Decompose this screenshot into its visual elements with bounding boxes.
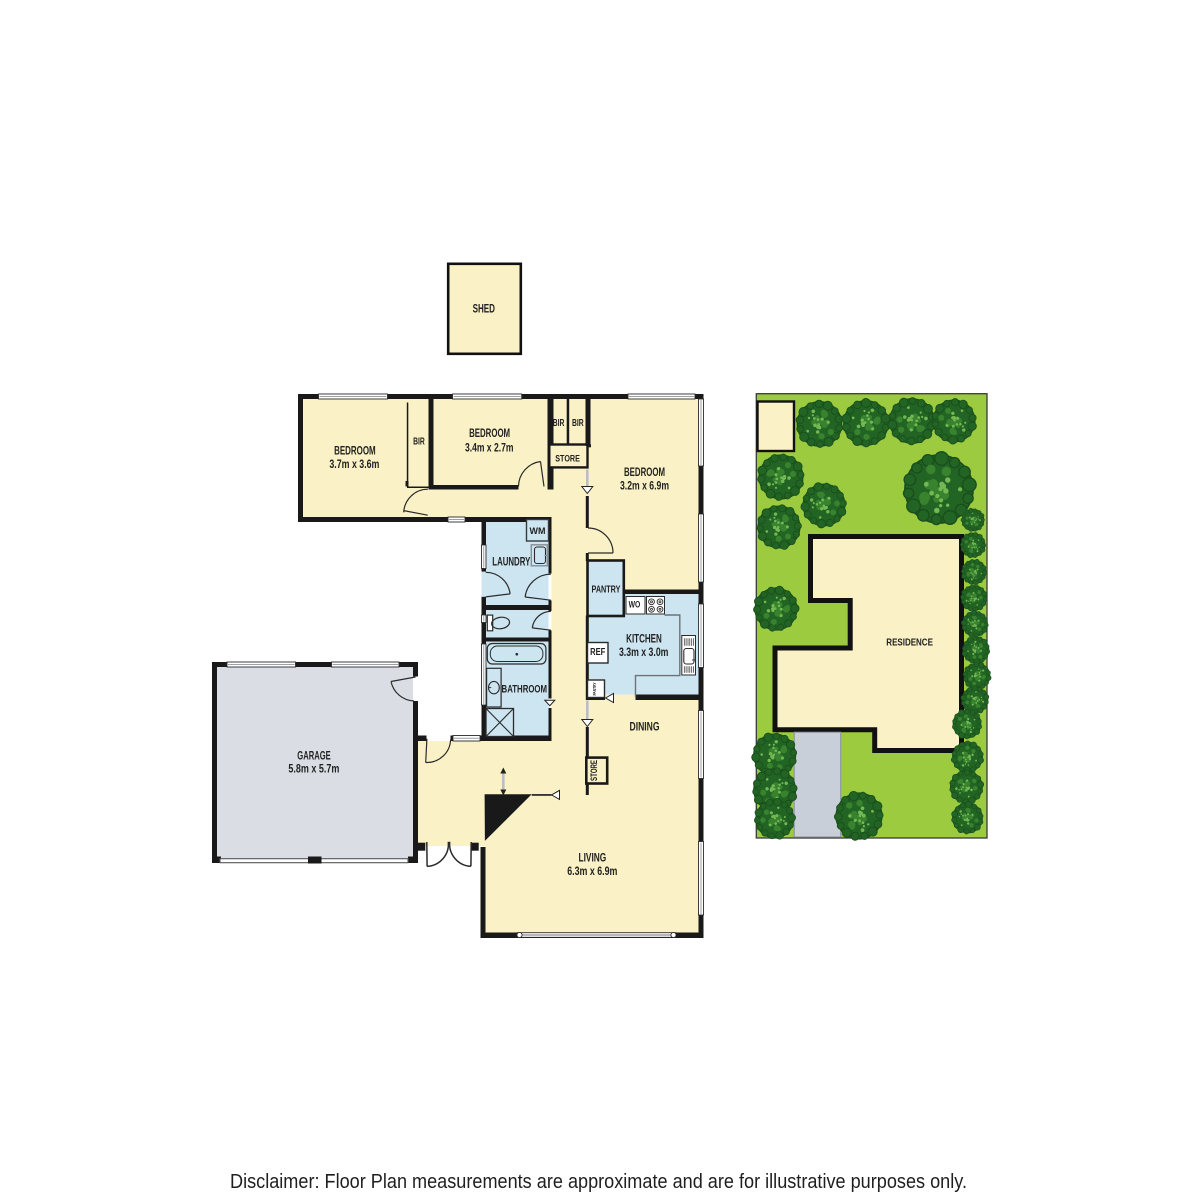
svg-text:REF: REF: [590, 647, 605, 658]
svg-text:3.3m x 3.0m: 3.3m x 3.0m: [619, 645, 669, 659]
svg-text:DINING: DINING: [630, 720, 660, 734]
svg-text:3.7m x 3.6m: 3.7m x 3.6m: [329, 457, 379, 471]
svg-text:5.8m x 5.7m: 5.8m x 5.7m: [288, 762, 339, 776]
svg-text:STORE: STORE: [589, 760, 599, 781]
svg-text:BEDROOM: BEDROOM: [624, 465, 665, 479]
svg-text:6.3m x 6.9m: 6.3m x 6.9m: [567, 864, 617, 878]
svg-text:BIR: BIR: [413, 437, 425, 448]
svg-text:BEDROOM: BEDROOM: [334, 444, 376, 458]
svg-text:STORE: STORE: [555, 454, 580, 465]
svg-text:Disclaimer: Floor Plan measure: Disclaimer: Floor Plan measurements are …: [230, 1171, 967, 1193]
svg-text:3.4m x 2.7m: 3.4m x 2.7m: [465, 440, 514, 454]
svg-text:BIR: BIR: [553, 418, 565, 429]
svg-text:RESIDENCE: RESIDENCE: [886, 637, 933, 649]
svg-text:PANTRY: PANTRY: [592, 584, 621, 595]
svg-text:BATHROOM: BATHROOM: [502, 683, 548, 695]
svg-text:LIVING: LIVING: [579, 851, 607, 865]
svg-text:BIR: BIR: [572, 418, 584, 429]
svg-text:PANTRY: PANTRY: [592, 683, 597, 696]
svg-text:WM: WM: [530, 526, 546, 537]
svg-text:3.2m x 6.9m: 3.2m x 6.9m: [620, 479, 669, 493]
svg-text:KITCHEN: KITCHEN: [626, 631, 662, 645]
svg-text:LAUNDRY: LAUNDRY: [492, 557, 530, 569]
svg-text:BEDROOM: BEDROOM: [469, 426, 510, 440]
svg-text:WO: WO: [629, 599, 641, 610]
svg-text:SHED: SHED: [473, 301, 496, 315]
svg-text:GARAGE: GARAGE: [297, 748, 330, 762]
